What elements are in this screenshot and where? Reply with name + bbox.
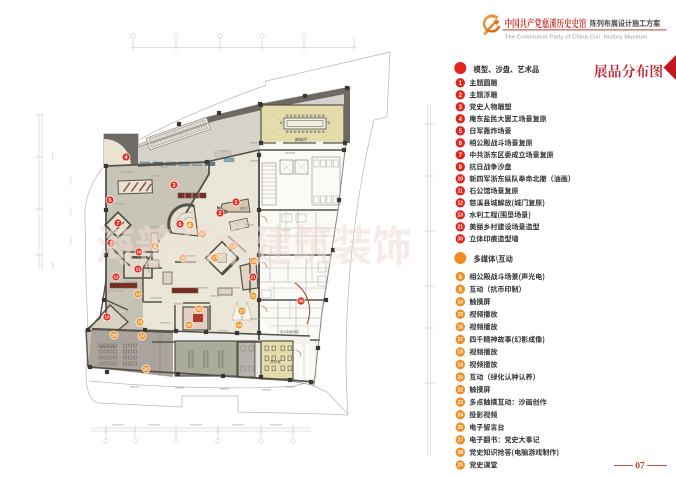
svg-text:20: 20 — [458, 375, 464, 381]
svg-text:10: 10 — [136, 250, 142, 255]
svg-text:27: 27 — [139, 334, 145, 339]
svg-text:12: 12 — [113, 275, 119, 280]
svg-text:11: 11 — [458, 189, 464, 195]
svg-text:2: 2 — [218, 211, 221, 217]
svg-text:13: 13 — [458, 213, 464, 219]
svg-text:25: 25 — [196, 307, 202, 312]
svg-text:10: 10 — [458, 177, 464, 183]
svg-text:30: 30 — [298, 299, 304, 304]
svg-text:29: 29 — [111, 333, 117, 338]
svg-text:14: 14 — [135, 292, 141, 297]
svg-text:23: 23 — [458, 400, 464, 406]
svg-text:22: 22 — [458, 387, 464, 393]
svg-text:14: 14 — [458, 300, 464, 306]
svg-text:23: 23 — [239, 309, 245, 314]
svg-text:16: 16 — [458, 325, 464, 331]
svg-text:22: 22 — [250, 294, 256, 299]
svg-text:24: 24 — [236, 323, 242, 328]
svg-text:21: 21 — [458, 225, 464, 231]
svg-text:30: 30 — [458, 237, 464, 243]
svg-text:12: 12 — [458, 201, 464, 207]
svg-text:18: 18 — [458, 350, 464, 356]
svg-text:11: 11 — [136, 267, 141, 272]
svg-text:28: 28 — [143, 367, 149, 372]
svg-text:07: 07 — [635, 462, 645, 472]
svg-text:29: 29 — [458, 463, 464, 469]
svg-text:The Communist Party of China C: The Communist Party of China Cixi Histor… — [505, 35, 648, 41]
svg-text:17: 17 — [458, 337, 464, 343]
svg-text:21: 21 — [250, 275, 256, 280]
svg-text:15: 15 — [458, 312, 464, 318]
svg-text:27: 27 — [458, 438, 464, 444]
svg-text:19: 19 — [458, 362, 464, 368]
svg-text:13: 13 — [104, 315, 110, 320]
svg-text:15: 15 — [137, 320, 143, 325]
svg-text:28: 28 — [458, 450, 464, 456]
svg-text:24: 24 — [458, 413, 464, 419]
svg-text:7: 7 — [116, 221, 119, 227]
svg-text:26: 26 — [186, 323, 192, 328]
svg-text:26: 26 — [458, 425, 464, 431]
